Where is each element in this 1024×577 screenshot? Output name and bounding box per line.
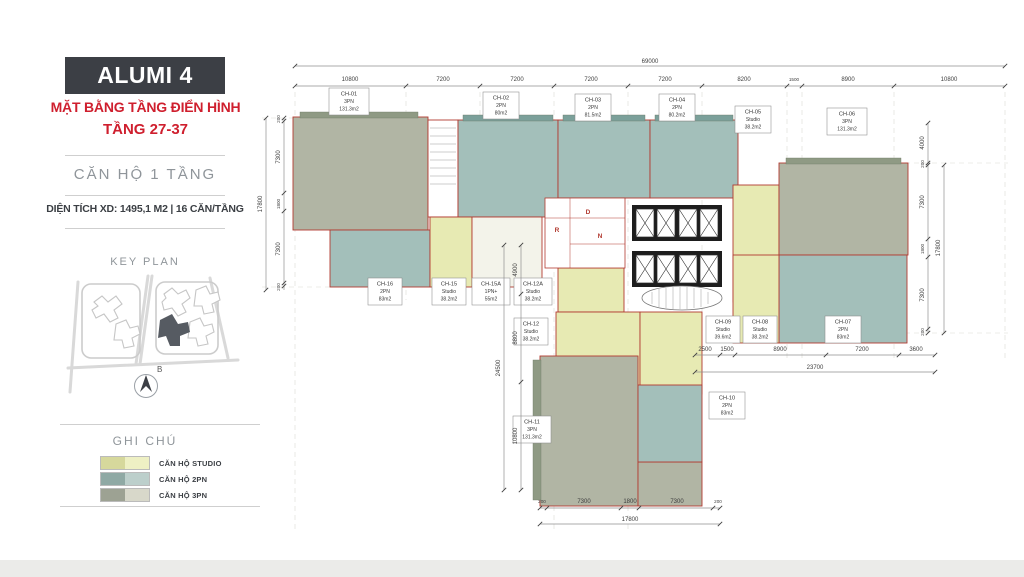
svg-text:38.2m2: 38.2m2: [745, 125, 762, 131]
dim-total: 17800: [622, 517, 639, 523]
svg-text:38.2m2: 38.2m2: [441, 297, 458, 303]
stair-shaft: [428, 120, 458, 217]
building-units: [293, 112, 908, 506]
svg-text:83m2: 83m2: [721, 411, 734, 417]
svg-text:Studio: Studio: [442, 289, 456, 295]
svg-text:2PN: 2PN: [588, 105, 598, 111]
svg-text:200: 200: [920, 160, 925, 168]
floor-plan-drawing: R D N CH-01 3PN131.3m2: [0, 0, 1024, 577]
dimensions-top: 69000 10800 7200 7200 7200 7200 8200 150…: [293, 59, 1007, 88]
svg-text:8800: 8800: [513, 331, 519, 345]
unit-area-ch-12a: [558, 268, 624, 312]
svg-text:2PN: 2PN: [838, 327, 848, 333]
dimensions-mid-right: 2500 1500 8900 7200 3600 23700: [693, 347, 937, 374]
svg-text:3PN: 3PN: [527, 427, 537, 433]
svg-text:10800: 10800: [941, 77, 958, 83]
svg-text:7200: 7200: [584, 77, 598, 83]
svg-text:7300: 7300: [920, 195, 926, 209]
unit-area-ch-02: [458, 120, 558, 217]
svg-text:4900: 4900: [513, 263, 519, 277]
unit-label-ch-09: CH-09 Studio39.6m2: [706, 316, 740, 343]
svg-text:CH-03: CH-03: [585, 98, 601, 104]
svg-text:CH-16: CH-16: [377, 282, 393, 288]
core-label-r: R: [555, 227, 560, 234]
svg-text:83m2: 83m2: [837, 335, 850, 341]
svg-text:Studio: Studio: [753, 327, 767, 333]
svg-text:2PN: 2PN: [380, 289, 390, 295]
svg-text:8900: 8900: [841, 77, 855, 83]
unit-area-ch-09: [640, 312, 702, 394]
svg-text:CH-09: CH-09: [715, 320, 731, 326]
svg-text:131.3m2: 131.3m2: [522, 435, 542, 441]
svg-text:2PN: 2PN: [672, 105, 682, 111]
svg-text:200: 200: [276, 115, 281, 123]
svg-text:7200: 7200: [855, 347, 869, 353]
svg-text:7200: 7200: [436, 77, 450, 83]
unit-label-ch-06: CH-06 3PN131.3m2: [827, 108, 867, 135]
dim-total: 23700: [807, 365, 824, 371]
svg-text:7200: 7200: [510, 77, 524, 83]
svg-text:CH-12A: CH-12A: [523, 282, 543, 288]
svg-text:CH-08: CH-08: [752, 320, 768, 326]
unit-label-ch-01: CH-01 3PN131.3m2: [329, 88, 369, 115]
dim-total: 69000: [642, 59, 659, 65]
svg-text:Studio: Studio: [526, 289, 540, 295]
unit-label-ch-02: CH-02 2PN80m2: [483, 92, 519, 119]
core-label-n: N: [598, 233, 603, 240]
svg-text:3PN: 3PN: [344, 99, 354, 105]
dimensions-right: 4000 200 7300 1800 7300 200 17800: [920, 121, 946, 336]
elevator-bank-bottom: [632, 251, 722, 287]
svg-text:131.3m2: 131.3m2: [339, 107, 359, 113]
svg-text:1800: 1800: [276, 198, 281, 209]
svg-text:7300: 7300: [276, 150, 282, 164]
svg-text:CH-11: CH-11: [524, 420, 540, 426]
svg-text:3600: 3600: [909, 347, 923, 353]
svg-text:CH-05: CH-05: [745, 110, 761, 116]
svg-text:38.2m2: 38.2m2: [525, 297, 542, 303]
unit-area-ch-15: [430, 217, 472, 287]
svg-text:8200: 8200: [737, 77, 751, 83]
svg-text:CH-06: CH-06: [839, 112, 855, 118]
unit-label-ch-08: CH-08 Studio38.2m2: [743, 316, 777, 343]
balcony: [786, 158, 901, 164]
svg-text:7300: 7300: [577, 499, 591, 505]
svg-text:7300: 7300: [276, 242, 282, 256]
unit-label-ch-10: CH-10 2PN83m2: [709, 392, 745, 419]
svg-text:Studio: Studio: [524, 329, 538, 335]
svg-text:CH-12: CH-12: [523, 322, 539, 328]
svg-text:80.2m2: 80.2m2: [669, 113, 686, 119]
svg-text:2500: 2500: [698, 347, 712, 353]
svg-text:Studio: Studio: [716, 327, 730, 333]
dim-total: 24500: [496, 359, 502, 376]
svg-text:8900: 8900: [773, 347, 787, 353]
svg-text:1PN+: 1PN+: [485, 289, 498, 295]
svg-text:2PN: 2PN: [722, 403, 732, 409]
svg-text:131.3m2: 131.3m2: [837, 127, 857, 133]
dimensions-left: 17800 200 7300 1800 7300 200: [258, 115, 286, 292]
svg-text:3PN: 3PN: [842, 119, 852, 125]
unit-label-ch-03: CH-03 2PN81.5m2: [575, 94, 611, 121]
svg-text:CH-07: CH-07: [835, 320, 851, 326]
svg-text:7300: 7300: [920, 288, 926, 302]
unit-area-ch-10: [638, 385, 702, 462]
svg-text:80m2: 80m2: [495, 111, 508, 117]
svg-text:81.5m2: 81.5m2: [585, 113, 602, 119]
unit-label-ch-04: CH-04 2PN80.2m2: [659, 94, 695, 121]
svg-text:39.6m2: 39.6m2: [715, 335, 732, 341]
unit-label-ch-16: CH-16 2PN83m2: [368, 278, 402, 305]
svg-text:55m2: 55m2: [485, 297, 498, 303]
unit-area-ch-11: [540, 356, 638, 506]
svg-text:38.2m2: 38.2m2: [752, 335, 769, 341]
svg-text:7300: 7300: [670, 499, 684, 505]
svg-text:4000: 4000: [920, 136, 926, 150]
elevator-bank-top: [632, 205, 722, 241]
svg-text:1500: 1500: [789, 77, 800, 82]
svg-text:7200: 7200: [658, 77, 672, 83]
svg-text:1800: 1800: [623, 499, 637, 505]
scissor-stairs: [642, 286, 722, 310]
svg-text:200: 200: [276, 283, 281, 291]
unit-label-ch-15: CH-15 Studio38.2m2: [432, 278, 466, 305]
svg-text:200: 200: [538, 499, 546, 504]
unit-area-ch-15a: [472, 217, 542, 287]
unit-area-ch-03: [558, 120, 650, 198]
unit-label-ch-07: CH-07 2PN83m2: [825, 316, 861, 343]
svg-text:CH-15A: CH-15A: [481, 282, 501, 288]
svg-text:200: 200: [714, 499, 722, 504]
unit-area-ch-06: [779, 163, 908, 255]
svg-text:10800: 10800: [513, 427, 519, 444]
unit-area-ch-04: [650, 120, 738, 198]
unit-label-ch-05: CH-05 Studio38.2m2: [735, 106, 771, 133]
svg-text:1800: 1800: [920, 243, 925, 254]
svg-text:10800: 10800: [342, 77, 359, 83]
svg-text:83m2: 83m2: [379, 297, 392, 303]
svg-text:200: 200: [920, 328, 925, 336]
svg-text:CH-15: CH-15: [441, 282, 457, 288]
svg-text:CH-02: CH-02: [493, 96, 509, 102]
svg-text:CH-04: CH-04: [669, 98, 685, 104]
svg-text:17800: 17800: [258, 195, 264, 212]
svg-text:CH-10: CH-10: [719, 396, 735, 402]
svg-text:2PN: 2PN: [496, 103, 506, 109]
svg-text:1500: 1500: [720, 347, 734, 353]
unit-label-ch-12: CH-12 Studio38.2m2: [514, 318, 548, 345]
page-footer-band: [0, 560, 1024, 577]
unit-area-ch-01: [293, 117, 428, 230]
core-label-d: D: [586, 209, 591, 216]
svg-text:Studio: Studio: [746, 117, 760, 123]
unit-label-ch-12a: CH-12A Studio38.2m2: [514, 278, 552, 305]
svg-text:CH-01: CH-01: [341, 92, 357, 98]
dim-total: 17800: [936, 239, 942, 256]
svg-text:38.2m2: 38.2m2: [523, 337, 540, 343]
